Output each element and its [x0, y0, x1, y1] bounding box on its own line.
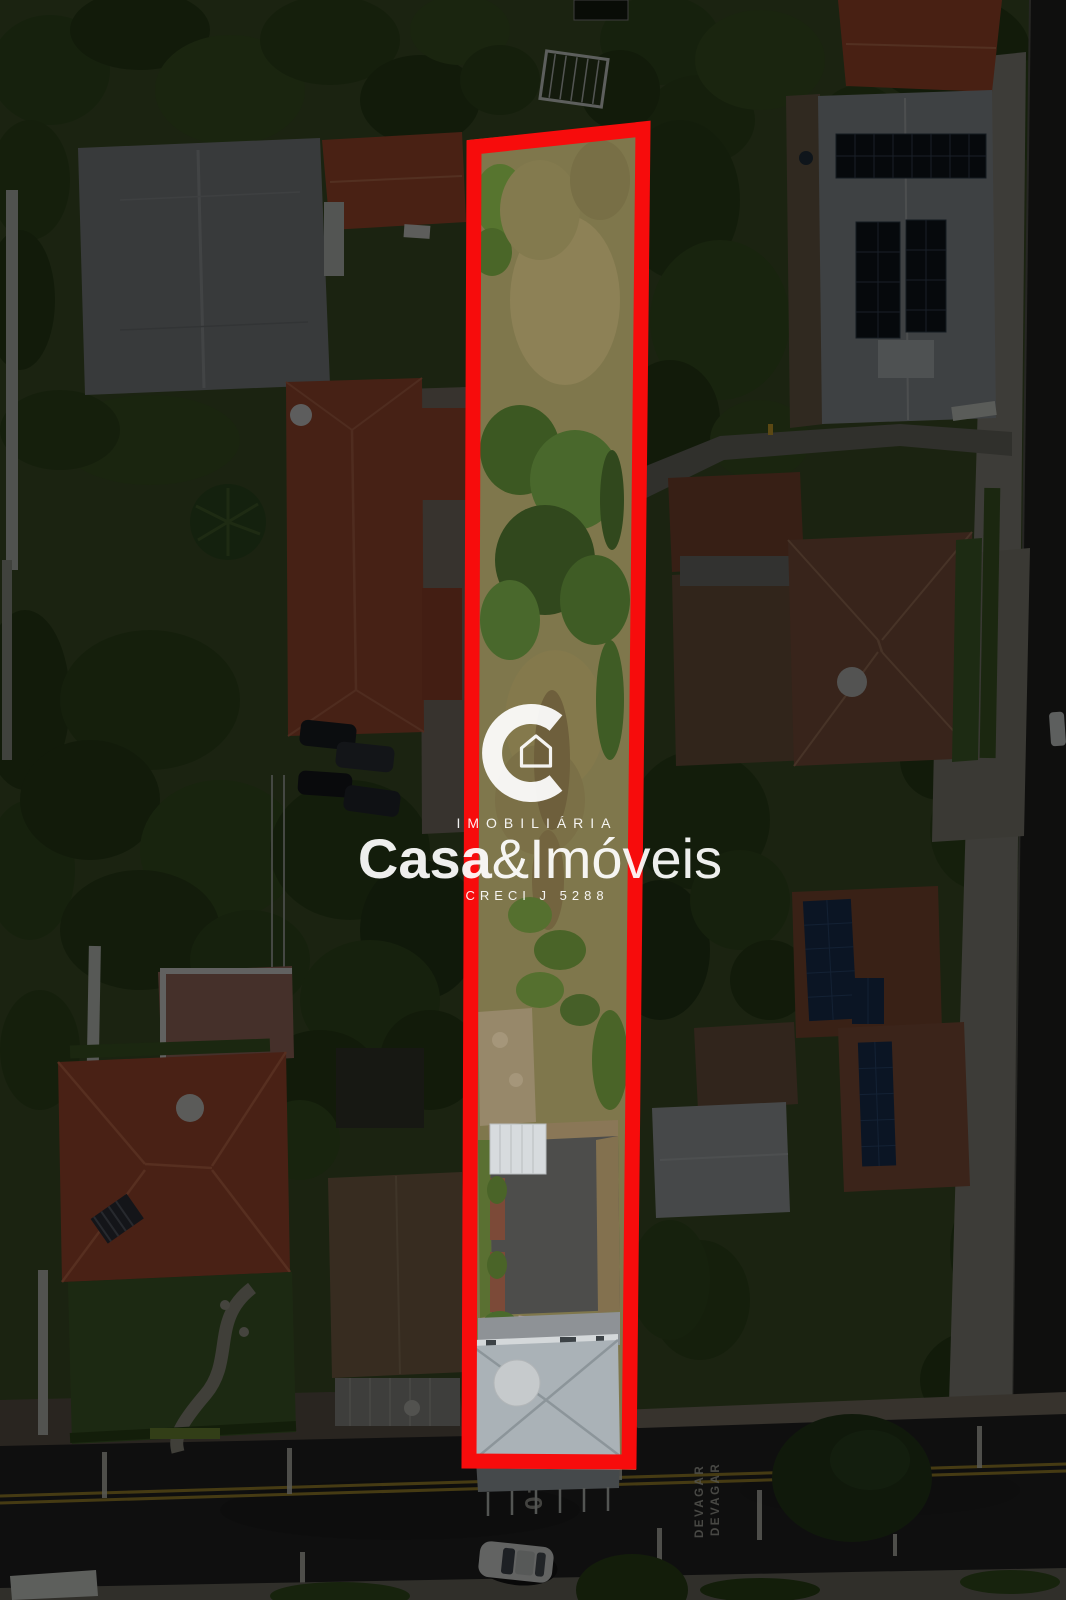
aerial-photo-svg: 40 DEVAGAR DEVAGAR — [0, 0, 1066, 1600]
aerial-photo: 40 DEVAGAR DEVAGAR — [0, 0, 1066, 1600]
watermark-brand: Casa&Imóveis — [358, 827, 722, 890]
white-shed-roof — [490, 1124, 546, 1174]
roof-dome — [494, 1360, 540, 1406]
watermark-brand-light: &Imóveis — [492, 827, 722, 890]
lot-interior — [462, 122, 650, 1470]
watermark-license: CRECI J 5288 — [465, 888, 608, 903]
watermark-brand-bold: Casa — [358, 827, 493, 890]
